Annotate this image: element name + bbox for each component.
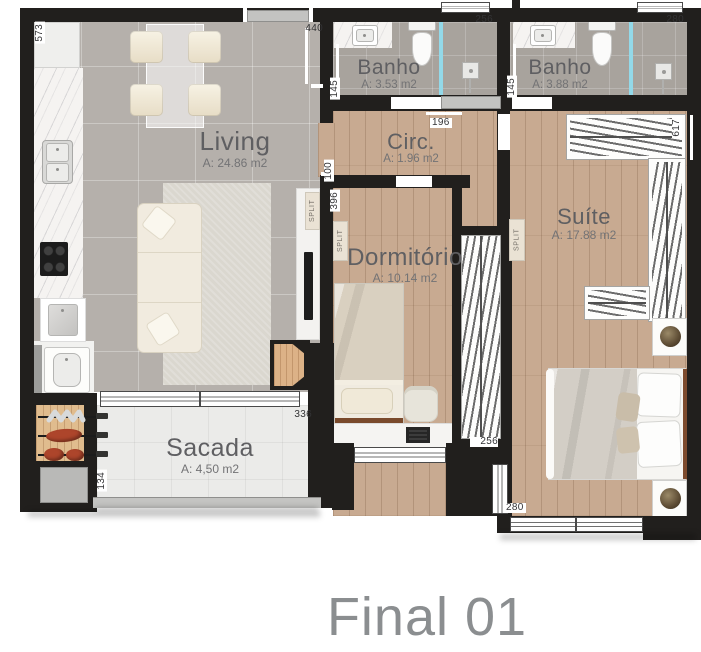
circ-label: Circ. — [371, 131, 451, 153]
plan-shadow — [500, 534, 696, 540]
sacada-label: Sacada — [150, 436, 270, 461]
kitchen-sink-icon — [42, 140, 73, 184]
skewer-handle — [96, 413, 108, 419]
split-ac-badge: SPLIT — [305, 192, 320, 230]
banho2-sink-icon — [530, 25, 556, 46]
wall — [320, 175, 470, 188]
window-mullion — [199, 391, 201, 407]
laptop-icon — [406, 427, 430, 443]
banho1-sink-icon — [352, 25, 378, 46]
dorm-doorway — [396, 176, 432, 187]
banho1-door — [441, 96, 501, 109]
dim-100: 100 — [324, 160, 334, 182]
dim-280-banho2: 280 — [656, 15, 684, 25]
sofa-icon — [137, 203, 202, 353]
entry-door — [247, 10, 309, 22]
meat-icon — [44, 448, 64, 461]
wall — [512, 0, 520, 9]
dimension-tick — [426, 112, 462, 115]
kitchen-island-sink — [40, 298, 86, 342]
dining-chair — [188, 84, 221, 116]
dimension-tick — [311, 84, 323, 88]
banho1-shower-stem — [469, 79, 471, 93]
split-ac-badge: SPLIT — [509, 219, 525, 261]
dorm-window — [354, 447, 446, 463]
sacada-area: A: 4,50 m2 — [150, 463, 270, 475]
dining-chair — [130, 84, 163, 116]
wall — [308, 343, 334, 508]
laundry-wall-strip — [34, 345, 42, 393]
dim-336: 336 — [284, 410, 312, 420]
banho1-window — [441, 2, 490, 13]
banho1-label: Banho — [349, 57, 429, 78]
sideboard-icon — [274, 344, 304, 386]
banho1-shower-glass — [439, 22, 443, 95]
sausage-spiral-icon — [46, 408, 86, 424]
closet-hangers-icon — [652, 162, 682, 318]
living-area: A: 24.86 m2 — [170, 157, 300, 169]
suite-area: A: 17.88 m2 — [544, 229, 624, 241]
tv-icon — [304, 252, 313, 320]
banho1-doorway — [391, 97, 441, 109]
banho1-area: A: 3.53 m2 — [349, 80, 429, 92]
laundry-tank-icon — [44, 347, 90, 393]
wall — [687, 8, 701, 533]
dorm-bed-icon — [334, 283, 404, 425]
plan-title: Final 01 — [157, 590, 697, 644]
wall — [20, 8, 701, 22]
banho2-doorway — [512, 97, 552, 109]
plant-icon — [660, 488, 681, 509]
dimension-tick — [690, 115, 693, 160]
dim-617: 617 — [672, 117, 682, 139]
plant-icon — [660, 326, 681, 347]
dim-280-suite: 280 — [504, 503, 526, 513]
dim-196: 196 — [430, 118, 452, 128]
dining-chair — [188, 31, 221, 63]
skewer-handle — [96, 432, 108, 438]
dim-256-wardrobe: 256 — [470, 437, 498, 447]
banho2-shower-stem — [662, 80, 664, 94]
suite-bed-icon — [548, 368, 686, 480]
dormitorio-area: A: 10.14 m2 — [345, 272, 465, 284]
closet-hangers-icon — [570, 118, 682, 156]
wall — [332, 443, 354, 510]
closet-hangers-icon — [588, 290, 646, 316]
plan-shadow — [28, 511, 320, 517]
skewer-handle — [96, 451, 108, 457]
banho2-shower-glass — [629, 22, 633, 95]
dimension-tick — [305, 28, 308, 84]
floor-plan: SPLIT SPLIT SPLIT Living A: 24.86 m2 Ban… — [0, 0, 701, 652]
grill-counter — [40, 467, 88, 503]
dim-134: 134 — [97, 470, 107, 492]
dining-chair — [130, 31, 163, 63]
dim-145-banho2: 145 — [507, 76, 517, 98]
circ-area: A: 1.96 m2 — [371, 154, 451, 166]
dim-145-banho1: 145 — [330, 78, 340, 100]
meat-icon — [66, 449, 84, 461]
suite-label: Suíte — [544, 206, 624, 228]
dim-396: 396 — [330, 190, 340, 212]
door-jamb — [309, 8, 313, 22]
living-label: Living — [170, 128, 300, 154]
dormitorio-label: Dormitório — [335, 246, 475, 270]
banho2-area: A: 3.88 m2 — [520, 80, 600, 92]
plan-shadow — [96, 507, 318, 511]
dim-440: 440 — [283, 24, 323, 34]
window-mullion — [575, 517, 577, 532]
banho2-label: Banho — [520, 57, 600, 78]
banho1-shower-icon — [462, 62, 479, 79]
banho2-shower-icon — [655, 63, 672, 80]
dim-573: 573 — [35, 22, 45, 44]
dorm-chair-icon — [404, 386, 438, 422]
cooktop-icon — [40, 242, 68, 276]
banho2-window — [637, 2, 683, 13]
dim-256-banho1: 256 — [465, 15, 493, 25]
suite-doorway — [498, 114, 510, 150]
